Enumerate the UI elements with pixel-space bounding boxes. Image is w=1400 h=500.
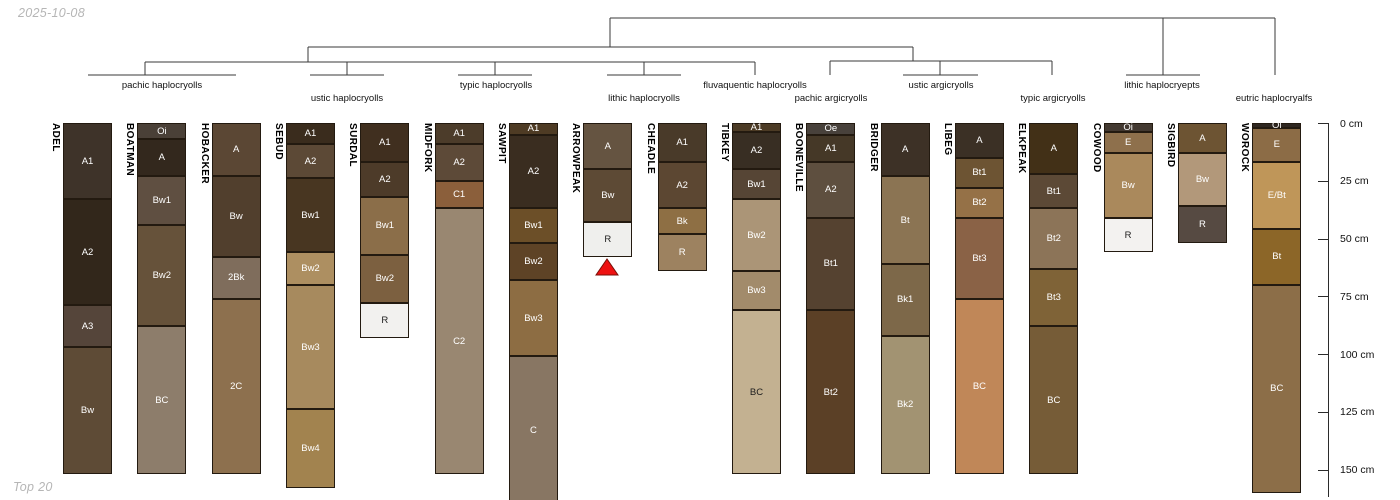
horizon-rect: A2 (732, 132, 781, 169)
horizon-label: Oi (157, 127, 167, 136)
taxon-group-label: ustic argicryolls (909, 80, 974, 91)
horizon-label: C (530, 426, 537, 435)
horizon-label: Bw3 (301, 343, 319, 352)
horizon-label: A (1199, 134, 1205, 143)
horizon-label: BC (1270, 384, 1283, 393)
horizon-rect: Bt2 (1029, 208, 1078, 268)
horizon-label: A1 (453, 129, 465, 138)
horizon-rect: R (658, 234, 707, 271)
profile-name-label: ADEL (49, 123, 61, 152)
depth-axis-tick (1318, 123, 1328, 124)
profile-name-label: HOBACKER (198, 123, 210, 184)
horizon-label: BC (973, 382, 986, 391)
horizon-label: A (1051, 144, 1057, 153)
horizon-rect: Bw2 (732, 199, 781, 271)
horizon-label: A (902, 145, 908, 154)
horizon-rect: Bw3 (286, 285, 335, 410)
horizon-rect: Bt (881, 176, 930, 264)
horizon-rect: A1 (435, 123, 484, 144)
depth-axis-tick-label: 75 cm (1340, 291, 1369, 303)
horizon-rect: BC (732, 310, 781, 474)
depth-axis-tick (1318, 470, 1328, 471)
horizon-rect: R (1178, 206, 1227, 243)
horizon-label: Bw2 (376, 274, 394, 283)
horizon-rect: Bw (1104, 153, 1153, 218)
horizon-label: Bt2 (1047, 234, 1061, 243)
horizon-label: A (976, 136, 982, 145)
horizon-rect: A (881, 123, 930, 176)
horizon-label: Bw1 (376, 221, 394, 230)
horizon-label: Bw3 (524, 314, 542, 323)
profile-name-label: SAWPIT (495, 123, 507, 164)
horizon-rect: A (1178, 123, 1227, 153)
horizon-label: A1 (676, 138, 688, 147)
horizon-rect: C2 (435, 208, 484, 474)
horizon-rect: A2 (63, 199, 112, 305)
horizon-rect: Bt2 (806, 310, 855, 474)
profile-name-label: LIBEG (941, 123, 953, 156)
profile-name-label: ELKPEAK (1015, 123, 1027, 174)
horizon-label: R (679, 248, 686, 257)
horizon-rect: Bw3 (732, 271, 781, 310)
horizon-label: A1 (379, 138, 391, 147)
horizon-label: A (605, 142, 611, 151)
horizon-rect: A1 (360, 123, 409, 162)
horizon-rect: A1 (658, 123, 707, 162)
horizon-rect: Oe (806, 123, 855, 135)
horizon-label: Bw2 (301, 264, 319, 273)
horizon-label: Bt (1272, 252, 1281, 261)
horizon-label: A2 (305, 157, 317, 166)
horizon-rect: A2 (658, 162, 707, 208)
horizon-label: A3 (82, 322, 94, 331)
horizon-label: Bw2 (524, 257, 542, 266)
horizon-label: A2 (453, 158, 465, 167)
horizon-rect: A (137, 139, 186, 176)
horizon-rect: A (212, 123, 261, 176)
horizon-rect: Bw1 (509, 208, 558, 243)
horizon-rect: R (360, 303, 409, 338)
horizon-rect: 2C (212, 299, 261, 475)
horizon-rect: A2 (286, 144, 335, 179)
horizon-rect: Bw1 (137, 176, 186, 225)
profile-name-label: MIDFORK (421, 123, 433, 172)
profile-name-label: ARROWPEAK (569, 123, 581, 193)
horizon-label: A2 (676, 181, 688, 190)
depth-axis-tick-label: 125 cm (1340, 406, 1374, 418)
horizon-label: Bw1 (524, 221, 542, 230)
horizon-label: A2 (751, 146, 763, 155)
depth-axis-tick (1318, 412, 1328, 413)
horizon-label: Bw (1196, 175, 1209, 184)
horizon-label: A1 (751, 123, 763, 132)
horizon-rect: A1 (63, 123, 112, 199)
horizon-label: R (604, 235, 611, 244)
horizon-rect: Bw3 (509, 280, 558, 356)
horizon-rect: R (583, 222, 632, 257)
horizon-label: Bw1 (153, 196, 171, 205)
depth-axis-tick-label: 25 cm (1340, 175, 1369, 187)
horizon-rect: Bk1 (881, 264, 930, 336)
horizon-rect: Bt1 (806, 218, 855, 310)
horizon-label: Bk2 (897, 400, 913, 409)
horizon-label: 2C (230, 382, 242, 391)
horizon-label: Bk (677, 217, 688, 226)
horizon-rect: Bw1 (732, 169, 781, 199)
horizon-rect: A2 (360, 162, 409, 197)
horizon-rect: Bt3 (1029, 269, 1078, 327)
horizon-label: Bt1 (972, 168, 986, 177)
profile-name-label: CHEADLE (644, 123, 656, 174)
horizon-rect: Oi (137, 123, 186, 139)
horizon-label: Bw (230, 212, 243, 221)
horizon-rect: C (509, 356, 558, 500)
taxon-group-label: fluvaquentic haplocryolls (703, 80, 807, 91)
taxon-group-label: typic argicryolls (1021, 93, 1086, 104)
horizon-rect: Bw2 (509, 243, 558, 280)
horizon-rect: A2 (435, 144, 484, 181)
horizon-label: A1 (305, 129, 317, 138)
horizon-label: R (1125, 231, 1132, 240)
horizon-label: BC (155, 396, 168, 405)
taxon-group-label: eutric haplocryalfs (1236, 93, 1313, 104)
horizon-label: A1 (528, 124, 540, 133)
horizon-label: Oi (1123, 123, 1133, 132)
horizon-label: Bw (1122, 181, 1135, 190)
horizon-rect: Bw2 (137, 225, 186, 327)
horizon-label: BC (1047, 396, 1060, 405)
horizon-label: Bw3 (747, 286, 765, 295)
horizon-label: Bt3 (1047, 293, 1061, 302)
horizon-label: Bw1 (301, 211, 319, 220)
depth-axis-tick-label: 0 cm (1340, 118, 1363, 130)
horizon-label: A (159, 153, 165, 162)
depth-axis-tick (1318, 181, 1328, 182)
horizon-rect: Bt3 (955, 218, 1004, 299)
horizon-rect: A2 (806, 162, 855, 217)
horizon-rect: BC (1029, 326, 1078, 474)
profile-name-label: BRIDGER (867, 123, 879, 172)
horizon-rect: BC (137, 326, 186, 474)
depth-axis-tick-label: 100 cm (1340, 349, 1374, 361)
depth-axis-tick-label: 50 cm (1340, 233, 1369, 245)
horizon-label: Bk1 (897, 295, 913, 304)
horizon-rect: Bw (1178, 153, 1227, 206)
horizon-rect: Oi (1104, 123, 1153, 132)
horizon-rect: Bw (583, 169, 632, 222)
horizon-label: E (1274, 140, 1280, 149)
horizon-label: A (233, 145, 239, 154)
horizon-rect: A1 (732, 123, 781, 132)
taxon-group-label: lithic haplocryepts (1124, 80, 1200, 91)
taxon-group-label: ustic haplocryolls (311, 93, 383, 104)
depth-axis-tick (1318, 239, 1328, 240)
profile-name-label: SIGBIRD (1164, 123, 1176, 167)
depth-axis-line (1328, 123, 1329, 497)
horizon-rect: Bw (63, 347, 112, 474)
horizon-label: Bt (901, 216, 910, 225)
horizon-rect: Bt1 (1029, 174, 1078, 209)
horizon-rect: Bk (658, 208, 707, 233)
taxon-group-label: pachic haplocryolls (122, 80, 202, 91)
horizon-label: Bt2 (824, 388, 838, 397)
horizon-rect: Bt2 (955, 188, 1004, 218)
horizon-label: C2 (453, 337, 465, 346)
horizon-rect: BC (1252, 285, 1301, 493)
taxon-group-label: lithic haplocryolls (608, 93, 680, 104)
horizon-label: Bt2 (972, 198, 986, 207)
horizon-rect: A3 (63, 305, 112, 347)
horizon-rect: Bw1 (286, 178, 335, 252)
profile-name-label: COWOOD (1090, 123, 1102, 173)
profile-name-label: SEBUD (272, 123, 284, 160)
horizon-label: Bw2 (153, 271, 171, 280)
horizon-label: Bw1 (747, 180, 765, 189)
horizon-label: C1 (453, 190, 465, 199)
horizon-rect: E (1252, 128, 1301, 163)
horizon-label: Bw2 (747, 231, 765, 240)
horizon-rect: A2 (509, 135, 558, 209)
horizon-rect: Bt1 (955, 158, 1004, 188)
horizon-rect: Bk2 (881, 336, 930, 475)
horizon-rect: A1 (286, 123, 335, 144)
profile-name-label: SURDAL (346, 123, 358, 167)
horizon-rect: A (583, 123, 632, 169)
horizon-rect: E (1104, 132, 1153, 153)
depth-axis-tick (1318, 354, 1328, 355)
horizon-label: Oe (824, 124, 837, 133)
depth-axis-tick-label: 150 cm (1340, 464, 1374, 476)
taxon-group-label: typic haplocryolls (460, 80, 532, 91)
horizon-rect: BC (955, 299, 1004, 475)
horizon-label: A2 (379, 175, 391, 184)
horizon-rect: C1 (435, 181, 484, 209)
horizon-label: Bw (601, 191, 614, 200)
horizon-label: Bw4 (301, 444, 319, 453)
horizon-rect: A (1029, 123, 1078, 174)
horizon-label: 2Bk (228, 273, 244, 282)
horizon-rect: Bw1 (360, 197, 409, 255)
horizon-label: BC (750, 388, 763, 397)
horizon-rect: Bw (212, 176, 261, 257)
horizon-rect: A (955, 123, 1004, 158)
horizon-label: Bt1 (824, 259, 838, 268)
horizon-rect: R (1104, 218, 1153, 253)
horizon-rect: 2Bk (212, 257, 261, 299)
horizon-label: A2 (528, 167, 540, 176)
horizon-rect: A1 (806, 135, 855, 163)
horizon-rect: Bw2 (360, 255, 409, 304)
red-triangle-marker (596, 259, 618, 275)
profile-name-label: WOROCK (1238, 123, 1250, 172)
horizon-label: Bw (81, 406, 94, 415)
depth-axis-tick (1318, 296, 1328, 297)
horizon-rect: Bw2 (286, 252, 335, 284)
horizon-label: A2 (82, 248, 94, 257)
taxon-group-label: pachic argicryolls (795, 93, 868, 104)
horizon-rect: E/Bt (1252, 162, 1301, 229)
horizon-rect: Bt (1252, 229, 1301, 284)
horizon-label: Bt3 (972, 254, 986, 263)
horizon-label: A2 (825, 185, 837, 194)
horizon-rect: Bw4 (286, 409, 335, 488)
profile-name-label: BOATMAN (123, 123, 135, 176)
horizon-label: R (1199, 220, 1206, 229)
horizon-label: R (381, 316, 388, 325)
horizon-label: A1 (82, 157, 94, 166)
horizon-label: E/Bt (1268, 191, 1286, 200)
horizon-label: E (1125, 138, 1131, 147)
profile-name-label: BOONEVILLE (792, 123, 804, 192)
horizon-label: Bt1 (1047, 187, 1061, 196)
horizon-rect: A1 (509, 123, 558, 135)
soil-taxonomy-dendrogram-plot: 2025-10-08 Top 20 pachic haplocryollsust… (0, 0, 1400, 500)
horizon-label: A1 (825, 144, 837, 153)
profile-name-label: TIBKEY (718, 123, 730, 162)
